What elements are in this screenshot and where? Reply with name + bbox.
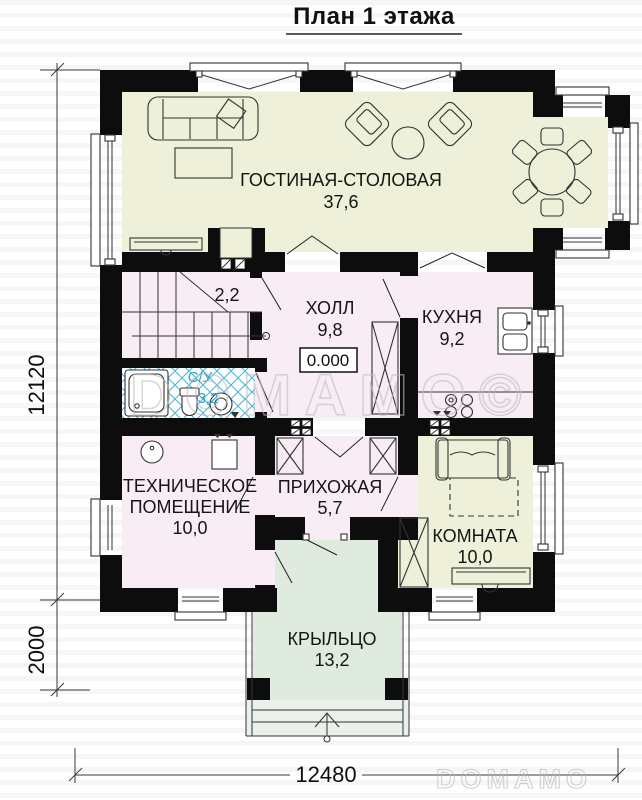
kitchen-sink (498, 308, 532, 354)
window-bay-bottom (556, 238, 609, 258)
vestibule-floor (275, 540, 378, 612)
label-living-area: 37,6 (323, 192, 358, 212)
label-bedroom-name: КОМНАТА (432, 526, 517, 546)
label-hall-name: ХОЛЛ (306, 298, 355, 318)
floor-plan-page: План 1 этажа (0, 0, 642, 800)
label-porch-name: КРЫЛЬЦО (288, 629, 377, 649)
label-living-name: ГОСТИНАЯ-СТОЛОВАЯ (240, 170, 442, 190)
elevation-mark: 0.000 (300, 348, 357, 372)
elevation-mark-value: 0.000 (307, 351, 350, 370)
window-bottom-bedroom (429, 597, 480, 620)
window-top-2 (345, 63, 461, 89)
window-bay-top (556, 87, 609, 107)
label-kitchen-name: КУХНЯ (422, 307, 482, 327)
page-title: План 1 этажа (286, 3, 462, 35)
window-bay-right (613, 123, 638, 224)
window-right-kitchen (538, 306, 563, 356)
label-kitchen-area: 9,2 (439, 329, 464, 349)
opening-living-kitchen-chevron (420, 253, 485, 268)
label-technical-name-2: ПОМЕЩЕНИЕ (130, 497, 251, 517)
label-technical-name-1: ТЕХНИЧЕСКОЕ (123, 476, 257, 496)
label-bathroom-name: С/У (188, 369, 213, 386)
label-hall-area: 9,8 (317, 320, 342, 340)
boiler (141, 441, 163, 463)
label-stair-closet-area: 2,2 (214, 285, 239, 305)
window-top-1 (190, 63, 308, 89)
dimension-width-total: 12480 (295, 762, 356, 787)
fireplace (208, 228, 265, 272)
water-heater (212, 440, 237, 469)
dimension-porch-depth: 2000 (24, 626, 49, 675)
window-bottom-technical (175, 597, 226, 620)
floor-plan-drawing: 12120 2000 12480 0.000 ГОСТИНАЯ-СТОЛОВАЯ… (0, 0, 642, 800)
label-bathroom-area: 3,2 (198, 390, 219, 407)
shower (125, 370, 168, 416)
window-right-bedroom (538, 463, 563, 554)
toilet (180, 388, 199, 416)
window-left-technical (91, 499, 112, 556)
label-porch-area: 13,2 (314, 650, 349, 670)
label-bedroom-area: 10,0 (457, 547, 492, 567)
label-entry-area: 5,7 (317, 498, 342, 518)
dimension-height-total: 12120 (24, 354, 49, 415)
window-left-living (91, 134, 115, 266)
label-entry-name: ПРИХОЖАЯ (278, 477, 383, 497)
label-technical-area: 10,0 (172, 518, 207, 538)
